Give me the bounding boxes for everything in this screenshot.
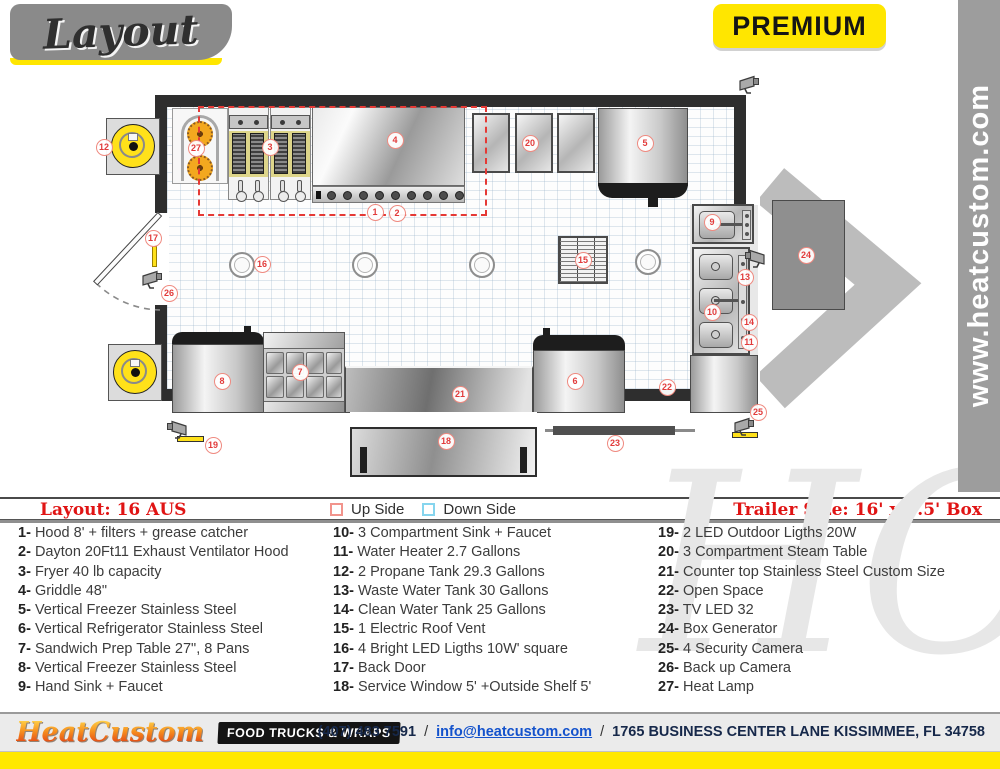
- side-legend: Up Side Down Side: [330, 501, 516, 518]
- page: Layout PREMIUM www.heatcustom.com: [0, 0, 1000, 769]
- website-vertical-text: www.heatcustom.com: [963, 84, 996, 407]
- equipment-item: 10- 3 Compartment Sink + Faucet: [333, 524, 591, 543]
- equipment-item: 26- Back up Camera: [658, 659, 945, 678]
- equipment-item: 20- 3 Compartment Steam Table: [658, 543, 945, 562]
- right-counter-panel: [690, 355, 758, 413]
- equipment-item: 5- Vertical Freezer Stainless Steel: [18, 601, 289, 620]
- equipment-item: 23- TV LED 32: [658, 601, 945, 620]
- led-ceiling-light: [469, 252, 495, 278]
- led-ceiling-light: [352, 252, 378, 278]
- plan-marker-19: 19: [205, 437, 222, 454]
- steam-table-compartment: [515, 113, 553, 173]
- premium-badge: PREMIUM: [713, 4, 886, 48]
- equipment-item: 21- Counter top Stainless Steel Custom S…: [658, 563, 945, 582]
- separator: /: [596, 724, 608, 740]
- security-camera-icon: [738, 74, 764, 94]
- equipment-item: 7- Sandwich Prep Table 27", 8 Pans: [18, 640, 289, 659]
- website-sidebar: www.heatcustom.com: [958, 0, 1000, 492]
- down-side-swatch: [422, 503, 435, 516]
- led-ceiling-light: [635, 249, 661, 275]
- equipment-item: 8- Vertical Freezer Stainless Steel: [18, 659, 289, 678]
- security-camera-icon: [162, 419, 188, 439]
- door-swing-arc: [60, 200, 190, 330]
- layout-name-label: Layout: 16 AUS: [40, 500, 186, 520]
- email-link[interactable]: info@heatcustom.com: [436, 724, 592, 740]
- security-camera-icon: [733, 416, 759, 436]
- box-generator: [772, 200, 845, 310]
- phone-number: (407) 483 7591: [318, 724, 416, 740]
- roof-vent: [558, 236, 608, 284]
- equipment-item: 27- Heat Lamp: [658, 678, 945, 697]
- equipment-item: 25- 4 Security Camera: [658, 640, 945, 659]
- heatcustom-logo: HeatCustom: [16, 717, 204, 748]
- security-camera-icon: [740, 248, 766, 268]
- sandwich-prep-table: [263, 332, 345, 413]
- separator: /: [420, 724, 432, 740]
- equipment-column-3: 19- 2 LED Outdoor Ligths 20W 20- 3 Compa…: [658, 524, 945, 698]
- up-side-swatch: [330, 503, 343, 516]
- equipment-item: 1- Hood 8' + filters + grease catcher: [18, 524, 289, 543]
- propane-tank-icon: [108, 344, 162, 401]
- fridge-top: [533, 335, 625, 350]
- freezer-base: [598, 183, 688, 198]
- equipment-item: 13- Waste Water Tank 30 Gallons: [333, 582, 591, 601]
- address-text: 1765 BUSINESS CENTER LANE KISSIMMEE, FL …: [612, 724, 985, 740]
- equipment-item: 18- Service Window 5' +Outside Shelf 5': [333, 678, 591, 697]
- footer-contact: (407) 483 7591 / info@heatcustom.com / 1…: [318, 724, 985, 740]
- vertical-freezer-unit: [172, 344, 264, 413]
- led-ceiling-light: [229, 252, 255, 278]
- layout-logo-text: Layout: [43, 5, 200, 58]
- equipment-column-1: 1- Hood 8' + filters + grease catcher 2-…: [18, 524, 289, 698]
- brand-logo-plate: Layout: [10, 4, 232, 60]
- equipment-item: 19- 2 LED Outdoor Ligths 20W: [658, 524, 945, 543]
- outside-shelf: [350, 427, 537, 477]
- equipment-item: 14- Clean Water Tank 25 Gallons: [333, 601, 591, 620]
- equipment-item: 22- Open Space: [658, 582, 945, 601]
- hood-dashed-outline: [198, 106, 487, 216]
- door-led-strip: [152, 246, 157, 267]
- equipment-item: 2- Dayton 20Ft11 Exhaust Ventilator Hood: [18, 543, 289, 562]
- hand-sink: [692, 204, 754, 244]
- steam-table-compartment: [557, 113, 595, 173]
- vertical-freezer-unit: [598, 108, 688, 186]
- equipment-item: 16- 4 Bright LED Ligths 10W' square: [333, 640, 591, 659]
- service-window-opening: [350, 412, 537, 426]
- up-side-label: Up Side: [351, 501, 404, 518]
- equipment-item: 12- 2 Propane Tank 29.3 Gallons: [333, 563, 591, 582]
- down-side-label: Down Side: [443, 501, 516, 518]
- bottom-accent-bar: [0, 752, 1000, 769]
- equipment-item: 9- Hand Sink + Faucet: [18, 678, 289, 697]
- equipment-item: 17- Back Door: [333, 659, 591, 678]
- backup-camera-icon: [141, 269, 167, 289]
- equipment-item: 6- Vertical Refrigerator Stainless Steel: [18, 620, 289, 639]
- equipment-column-2: 10- 3 Compartment Sink + Faucet 11- Wate…: [333, 524, 591, 698]
- equipment-item: 15- 1 Electric Roof Vent: [333, 620, 591, 639]
- plan-marker-23: 23: [607, 435, 624, 452]
- propane-tank-icon: [106, 118, 160, 175]
- tv-led-32: [553, 426, 675, 435]
- vertical-refrigerator-unit: [533, 350, 625, 413]
- equipment-item: 11- Water Heater 2.7 Gallons: [333, 543, 591, 562]
- equipment-item: 3- Fryer 40 lb capacity: [18, 563, 289, 582]
- countertop: [345, 366, 533, 413]
- equipment-item: 24- Box Generator: [658, 620, 945, 639]
- equipment-item: 4- Griddle 48": [18, 582, 289, 601]
- freezer-foot: [648, 198, 658, 207]
